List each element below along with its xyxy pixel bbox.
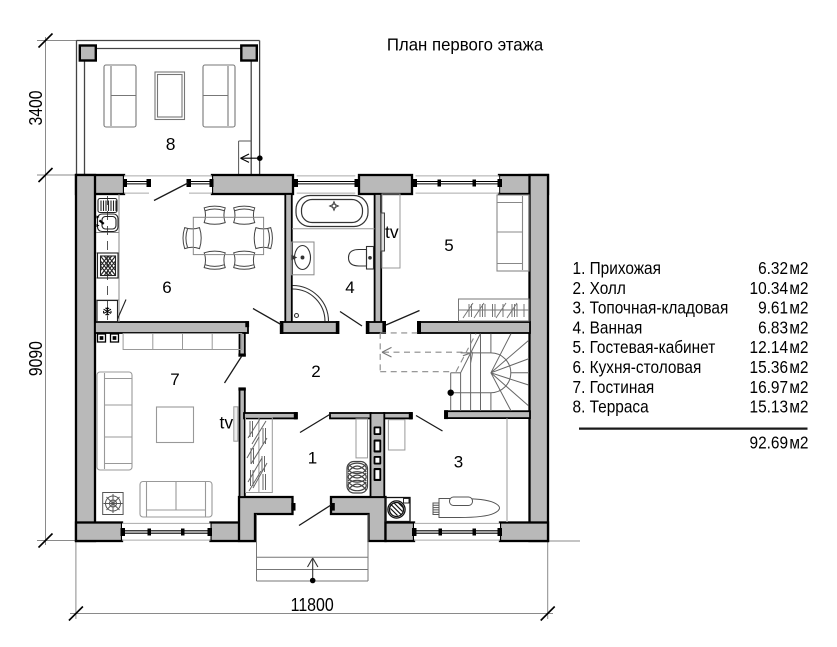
svg-text:6.83: 6.83 [758,319,788,338]
svg-text:м2: м2 [789,319,808,338]
svg-text:м2: м2 [789,259,808,278]
svg-text:м2: м2 [789,358,808,377]
svg-text:6: 6 [162,278,171,297]
svg-text:16.97: 16.97 [750,378,789,397]
svg-text:8: 8 [166,134,176,154]
svg-text:3400: 3400 [25,91,47,126]
svg-text:4: 4 [345,278,354,297]
svg-text:4. Ванная: 4. Ванная [573,319,643,338]
svg-text:План первого этажа: План первого этажа [387,34,544,54]
svg-text:м2: м2 [789,433,808,452]
svg-text:15.13: 15.13 [750,398,789,417]
svg-text:м2: м2 [789,299,808,318]
svg-text:6. Кухня-столовая: 6. Кухня-столовая [573,358,702,377]
svg-text:9.61: 9.61 [758,299,788,318]
svg-text:9090: 9090 [25,341,47,376]
svg-text:1. Прихожая: 1. Прихожая [573,259,661,278]
svg-text:5. Гостевая-кабинет: 5. Гостевая-кабинет [573,338,716,357]
svg-text:м2: м2 [789,338,808,357]
svg-text:6.32: 6.32 [758,259,788,278]
svg-text:11800: 11800 [291,594,334,615]
svg-text:12.14: 12.14 [750,338,789,357]
svg-text:м2: м2 [789,378,808,397]
svg-text:92.69: 92.69 [750,433,789,452]
svg-text:15.36: 15.36 [750,358,789,377]
svg-text:м2: м2 [789,398,808,417]
svg-text:tv: tv [385,222,399,242]
svg-text:2: 2 [311,362,320,381]
svg-text:7. Гостиная: 7. Гостиная [573,378,655,397]
svg-text:10.34: 10.34 [750,279,789,298]
svg-text:3. Топочная-кладовая: 3. Топочная-кладовая [573,299,729,318]
svg-text:5: 5 [444,236,453,255]
svg-text:3: 3 [454,453,463,472]
svg-text:2. Холл: 2. Холл [573,279,626,298]
svg-text:1: 1 [308,449,317,468]
svg-text:tv: tv [220,413,234,433]
svg-text:8. Терраса: 8. Терраса [573,398,650,417]
svg-text:7: 7 [170,370,179,389]
svg-text:м2: м2 [789,279,808,298]
